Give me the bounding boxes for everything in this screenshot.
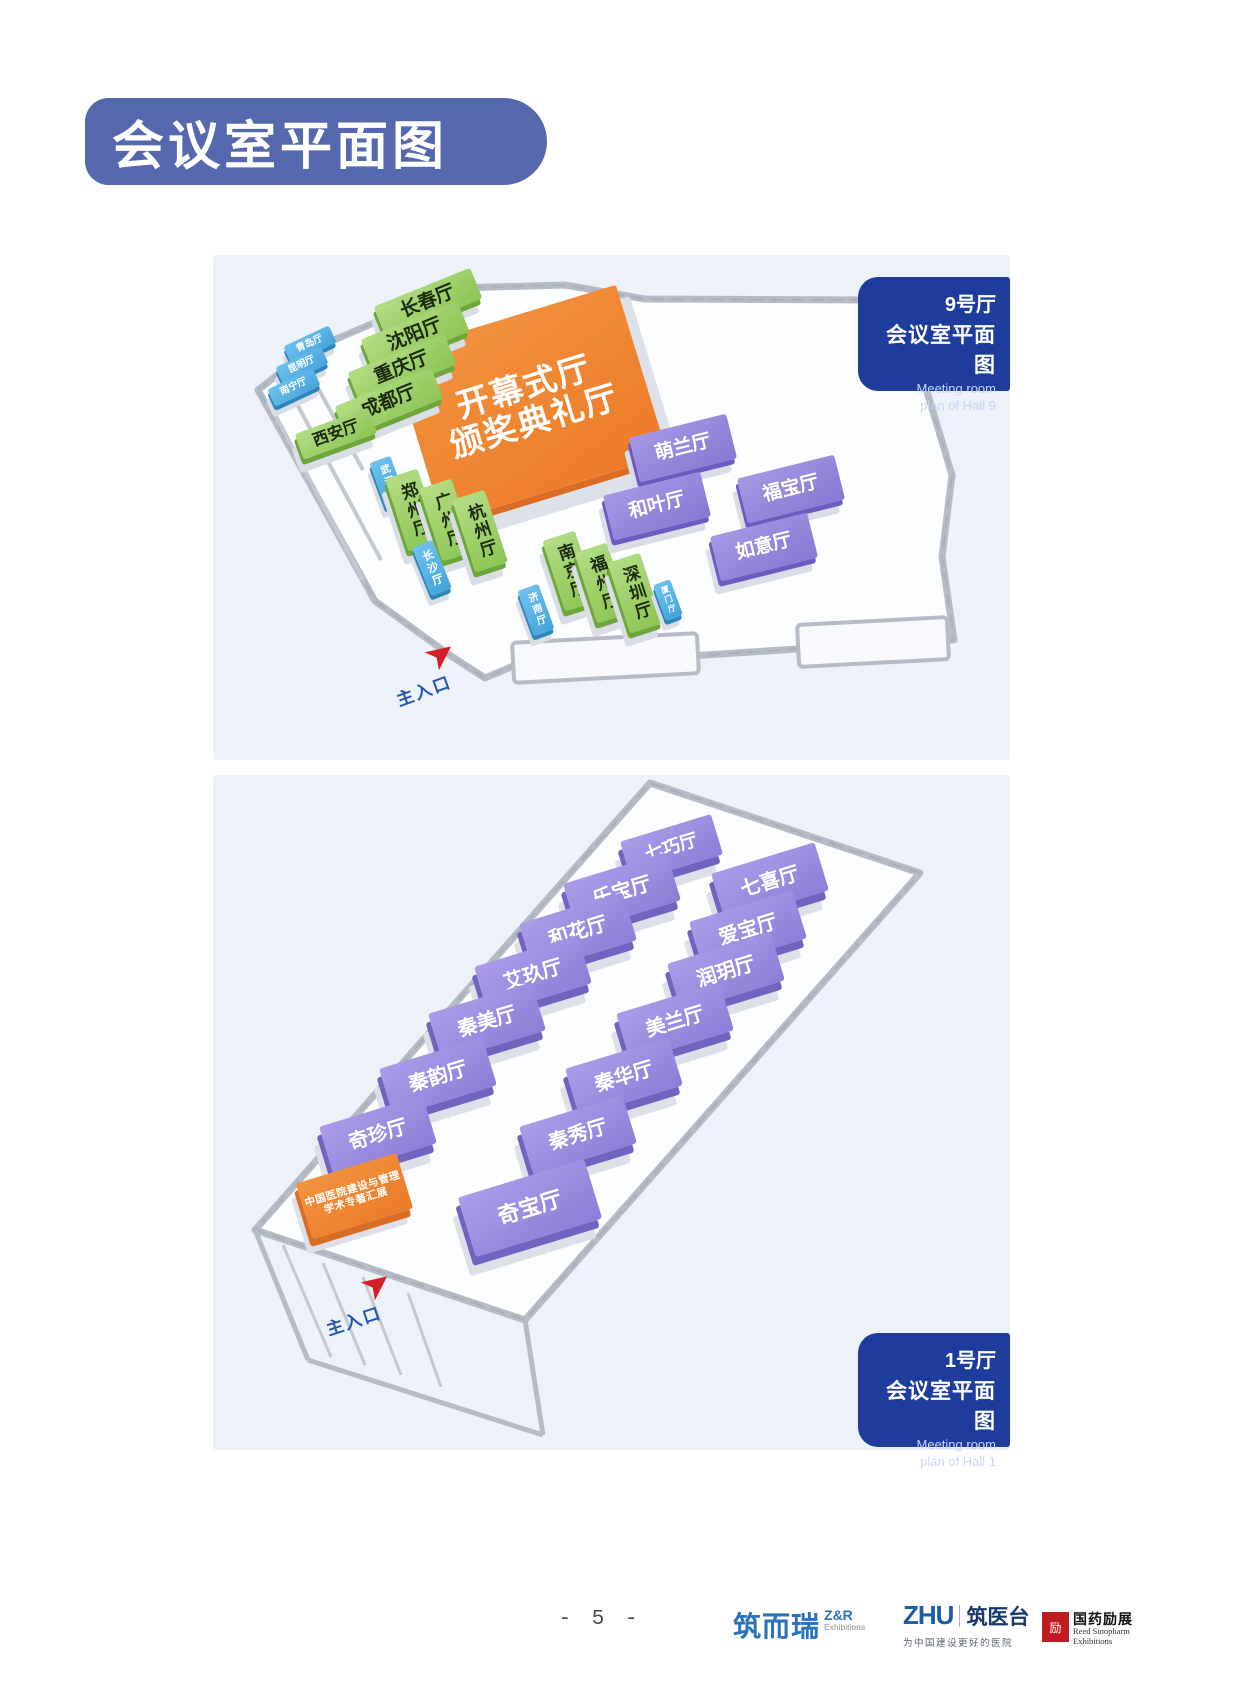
floor-plan-hall9: 开幕式厅 颁奖典礼厅 长春厅 沈阳厅 重庆厅 成都厅 西安厅 青岛厅 昆明厅 南…	[213, 255, 1010, 760]
page-title: 会议室平面图	[85, 98, 547, 185]
zr-exhibitions-logo: 筑而瑞 Z&R Exhibitions	[733, 1605, 865, 1645]
zr-logo-sub: Exhibitions	[824, 1622, 865, 1632]
sinopharm-seal-icon: 励	[1042, 1612, 1069, 1642]
sinopharm-logo: 励 国药励展 Reed Sinopharm Exhibitions	[1042, 1612, 1133, 1647]
hall1-badge-subtitle2: plan of Hall 1	[872, 1454, 996, 1469]
zr-logo-cn: 筑而瑞	[733, 1605, 820, 1645]
hall1-badge: 1号厅 会议室平面图 Meeting room plan of Hall 1	[858, 1333, 1010, 1447]
hall1-badge-hall: 1号厅	[872, 1344, 996, 1373]
sinopharm-logo-cn: 国药励展	[1073, 1612, 1133, 1627]
hall9-badge-subtitle1: Meeting room	[872, 381, 996, 396]
hall9-badge: 9号厅 会议室平面图 Meeting room plan of Hall 9	[858, 277, 1010, 391]
hall9-badge-subtitle2: plan of Hall 9	[872, 398, 996, 413]
hall9-badge-title: 会议室平面图	[872, 319, 996, 379]
page-number: - 5 -	[545, 1608, 655, 1631]
zhuyitai-logo-cn: 筑医台	[966, 1601, 1029, 1631]
zhuyitai-tagline: 为中国建设更好的医院	[903, 1635, 1029, 1649]
zr-logo-en: Z&R	[824, 1608, 865, 1622]
hall9-badge-hall: 9号厅	[872, 288, 996, 317]
hall1-badge-subtitle1: Meeting room	[872, 1437, 996, 1452]
hall1-badge-title: 会议室平面图	[872, 1375, 996, 1435]
zhuyitai-logo-en: ZHU	[903, 1600, 953, 1631]
zhuyitai-logo: ZHU 筑医台 为中国建设更好的医院	[903, 1600, 1029, 1649]
floor-plan-hall1: 七巧厅 七喜厅 乐宝厅 爱宝厅 和花厅 润玥厅 艾玖厅 美兰厅 秦美厅 秦华厅 …	[213, 775, 1010, 1450]
sinopharm-logo-en2: Exhibitions	[1073, 1637, 1133, 1647]
zhuyitai-logo-divider	[959, 1605, 960, 1627]
